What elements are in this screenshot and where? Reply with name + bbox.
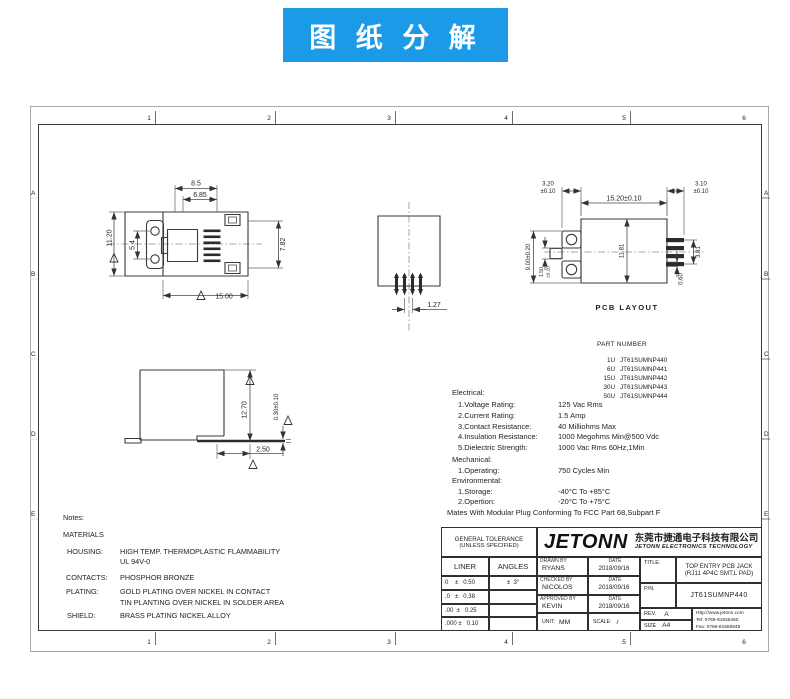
tolerance-liner-2: .0 ± 0.38: [441, 590, 489, 604]
side-body-outline: [140, 370, 224, 440]
zone-number: 2: [267, 639, 271, 646]
scale-cell: SCALE: /: [588, 613, 640, 631]
spec-label: 4.Insulation Resistance:: [458, 432, 558, 441]
title-value-cell: TOP ENTRY PCB JACK (RJ11 4P4C SMT,L PAD): [676, 557, 762, 583]
spec-value: 1000 Vac Rms 60Hz,1Min: [558, 443, 645, 452]
contacts-label: CONTACTS:: [66, 573, 108, 582]
zone-number: 5: [622, 639, 626, 646]
zone-letter: C: [31, 351, 36, 358]
dim-text: 6.85: [193, 192, 207, 199]
dim-text: 15.20±0.10: [607, 196, 642, 203]
plating-code: 30U: [595, 384, 615, 391]
shield-value: BRASS PLATING NICKEL ALLOY: [120, 611, 231, 620]
spec-value: 750 Cycles Min: [558, 466, 609, 475]
mates-note: Mates With Modular Plug Conforming To FC…: [447, 508, 660, 517]
title-label: TITLE.: [641, 558, 675, 566]
plating-code: 15U: [595, 375, 615, 382]
mount-hole: [151, 255, 159, 263]
spec-row: 2.Opertion: -20°C To +75°C: [458, 497, 610, 506]
general-tolerance-header: GENERAL TOLERANCE (UNLESS SPECIFIED): [441, 527, 537, 557]
contact-cell: Http://www.jetonn.com Tel: 0769-81555450…: [692, 608, 762, 631]
drawn-date-value: 2018/09/16: [589, 565, 639, 572]
zone-letter: E: [764, 511, 769, 518]
zone-letter: D: [31, 431, 36, 438]
dim-text: 11.20: [107, 229, 114, 246]
part-number-row: 15U JT61SUMNP442: [595, 375, 667, 382]
zone-number: 3: [387, 639, 391, 646]
drawn-by-cell: DRAWN BY RYANS: [537, 557, 588, 576]
spec-row: 1.Voltage Rating: 125 Vac Rms: [458, 400, 602, 409]
shield-label: SHIELD:: [67, 611, 95, 620]
dim-text: 3.10: [695, 182, 707, 188]
pn-label-cell: P/N.: [640, 583, 676, 608]
checked-by-value: NICOLOS: [538, 584, 587, 591]
zone-number: 1: [147, 639, 151, 646]
spec-row: 4.Insulation Resistance: 1000 Megohms Mi…: [458, 432, 659, 441]
part-number-row: 50U JT61SUMNP444: [595, 393, 667, 400]
dim-text: 15.00: [215, 294, 233, 301]
section-pins: [394, 273, 423, 296]
dim-text: 2.50: [256, 447, 270, 454]
dim-text: ±0.20: [546, 266, 551, 278]
dim-text: 8.5: [191, 181, 201, 188]
pn-label: P/N.: [641, 584, 675, 592]
spec-label: 2.Opertion:: [458, 497, 558, 506]
pn-value-cell: JT61SUMNP440: [676, 583, 762, 608]
plating-value2: TIN PLANTING OVER NICKEL IN SOLDER AREA: [120, 598, 284, 607]
spec-label: 5.Dielectric Strength:: [458, 443, 558, 452]
angles-header: ANGLES: [489, 557, 537, 576]
liner-header: LINER: [441, 557, 489, 576]
front-view: 8.5 6.85 11.20 5.4 7.82 15.00: [107, 181, 288, 301]
tolerance-liner-4: .000 ± 0.10: [441, 617, 489, 631]
dim-text: 0.60: [679, 273, 685, 285]
approved-date-value: 2018/09/16: [589, 603, 639, 610]
company-fax: Fax: 0769-81555945: [696, 624, 761, 631]
zone-letter: A: [764, 190, 769, 197]
spec-value: 125 Vac Rms: [558, 400, 602, 409]
environmental-header: Environmental:: [452, 476, 502, 485]
spec-label: 3.Contact Resistance:: [458, 422, 558, 431]
jetonn-logo: JETONN: [538, 531, 628, 554]
critical-dim-flag-icon: [249, 460, 257, 469]
checked-by-cell: CHECKED BY NICOLOS: [537, 576, 588, 595]
spec-value: 40 Milliohms Max: [558, 422, 616, 431]
scale-value: /: [616, 619, 618, 626]
dim-text: 5.4: [130, 240, 137, 250]
part-number-row: 6U JT61SUMNP441: [595, 366, 667, 373]
plating-label: PLATING:: [66, 587, 99, 596]
unit-label: UNIT:: [542, 619, 555, 625]
unit-value: MM: [559, 619, 570, 626]
materials-header: MATERIALS: [63, 530, 104, 539]
logo-cell: JETONN 东莞市捷通电子科技有限公司 JETONN ELECTRONICS …: [537, 527, 762, 557]
size-cell: SIZE A4: [640, 620, 692, 631]
zone-number: 3: [387, 115, 391, 122]
part-number: JT61SUMNP441: [620, 366, 667, 373]
zone-letter: A: [31, 190, 36, 197]
checked-date-cell: DATE 2018/09/16: [588, 576, 640, 595]
scale-label: SCALE:: [593, 619, 611, 625]
zone-number: 4: [504, 115, 508, 122]
zone-number: 2: [267, 115, 271, 122]
dim-text: 1.27: [427, 302, 441, 309]
part-number: JT61SUMNP444: [620, 393, 667, 400]
drawn-by-value: RYANS: [538, 565, 587, 572]
dim-text: 12.70: [242, 401, 249, 419]
mount-hole: [151, 227, 159, 235]
company-website: Http://www.jetonn.com: [696, 610, 761, 617]
dim-text: 1.50: [539, 267, 545, 277]
size-label: SIZE: [644, 623, 656, 629]
zone-number: 5: [622, 115, 626, 122]
approved-by-cell: APPROVED BY KEVIN: [537, 595, 588, 613]
part-number-row: 1U JT61SUMNP440: [595, 357, 667, 364]
part-number: JT61SUMNP442: [620, 375, 667, 382]
pcb-layout-view: 3.20 ±0.10 15.20±0.10 3.10 ±0.10 9.00±0.…: [526, 182, 709, 313]
dim-text: 9.00±0.20: [526, 243, 532, 270]
zone-letter: E: [31, 511, 36, 518]
housing-value: HIGH TEMP. THERMOPLASTIC FLAMMABILITY: [120, 547, 280, 556]
plating-code: 6U: [595, 366, 615, 373]
general-tolerance-line1: GENERAL TOLERANCE: [455, 536, 524, 543]
dim-text: ±0.10: [541, 189, 557, 195]
electrical-header: Electrical:: [452, 388, 485, 397]
contact-pins-hatch: [204, 230, 221, 263]
notes-header: Notes:: [63, 513, 84, 522]
approved-by-value: KEVIN: [538, 603, 587, 610]
dim-text: 0.30±0.10: [274, 393, 280, 420]
zone-letter: C: [764, 351, 769, 358]
unit-cell: UNIT: MM: [537, 613, 588, 631]
spec-value: 1.5 Amp: [558, 411, 586, 420]
approved-date-cell: DATE 2018/09/16: [588, 595, 640, 613]
checked-date-value: 2018/09/16: [589, 584, 639, 591]
title-label-cell: TITLE.: [640, 557, 676, 583]
size-value: A4: [662, 622, 670, 629]
mechanical-header: Mechanical:: [452, 455, 492, 464]
company-name-cn: 东莞市捷通电子科技有限公司: [635, 534, 759, 545]
tolerance-angles-3: [489, 604, 537, 617]
spec-row: 1.Storage: -40°C To +85°C: [458, 487, 610, 496]
zone-number: 6: [742, 115, 746, 122]
spec-label: 1.Operating:: [458, 466, 558, 475]
part-number-title: PART NUMBER: [597, 341, 647, 348]
dim-text: ±0.10: [694, 189, 710, 195]
part-number: JT61SUMNP443: [620, 384, 667, 391]
tolerance-angles-2: [489, 590, 537, 604]
pcb-pad: [562, 261, 581, 278]
tolerance-liner-1: 0 ± 0.50: [441, 576, 489, 590]
spec-value: 1000 Megohms Min@500 Vdc: [558, 432, 659, 441]
contacts-value: PHOSPHOR BRONZE: [120, 573, 194, 582]
plating-code: 1U: [595, 357, 615, 364]
zone-number: 4: [504, 639, 508, 646]
drawing-title-line2: (RJ11 4P4C SMT,L PAD): [685, 570, 753, 577]
drawing-title-line1: TOP ENTRY PCB JACK: [686, 563, 753, 570]
pcb-pad: [562, 231, 581, 248]
part-number: JT61SUMNP440: [620, 357, 667, 364]
part-number-row: 30U JT61SUMNP443: [595, 384, 667, 391]
spec-label: 1.Storage:: [458, 487, 558, 496]
critical-dim-flag-icon: [284, 416, 292, 425]
spec-label: 2.Current Rating:: [458, 411, 558, 420]
company-tel: Tel: 0769-81555450: [696, 617, 761, 624]
plating-value: GOLD PLATING OVER NICKEL IN CONTACT: [120, 587, 270, 596]
plug-cavity: [168, 230, 198, 262]
housing-label: HOUSING:: [67, 547, 103, 556]
spec-row: 2.Current Rating: 1.5 Amp: [458, 411, 586, 420]
side-view: 12.70 0.30±0.10 2.50: [125, 370, 292, 469]
zone-letter: D: [764, 431, 769, 438]
general-tolerance-line2: (UNLESS SPECIFIED): [459, 543, 518, 549]
rev-value: A: [664, 611, 668, 618]
dim-text: 7.82: [280, 238, 287, 252]
zone-letter: B: [31, 271, 35, 278]
dim-text: 3.81: [696, 246, 702, 258]
section-view: 1.27: [378, 202, 447, 332]
plating-code: 50U: [595, 393, 615, 400]
spec-row: 3.Contact Resistance: 40 Milliohms Max: [458, 422, 616, 431]
tolerance-angles-1: ± 3°: [489, 576, 537, 590]
spec-row: 5.Dielectric Strength: 1000 Vac Rms 60Hz…: [458, 443, 645, 452]
drawn-date-cell: DATE 2018/09/16: [588, 557, 640, 576]
tolerance-liner-3: .00 ± 0.25: [441, 604, 489, 617]
dim-text: 3.20: [542, 182, 554, 188]
spec-value: -40°C To +85°C: [558, 487, 610, 496]
spec-row: 1.Operating: 750 Cycles Min: [458, 466, 609, 475]
zone-number: 6: [742, 639, 746, 646]
dim-text: 11.81: [620, 243, 626, 258]
zone-letter: B: [764, 271, 768, 278]
pcb-layout-label: PCB LAYOUT: [595, 303, 658, 312]
rev-label: REV.: [644, 611, 656, 617]
rev-cell: REV. A: [640, 608, 692, 620]
company-name-en: JETONN ELECTRONICS TECHNOLOGY: [635, 544, 759, 550]
tolerance-angles-4: [489, 617, 537, 631]
spec-label: 1.Voltage Rating:: [458, 400, 558, 409]
spec-value: -20°C To +75°C: [558, 497, 610, 506]
housing-value2: UL 94V-0: [120, 557, 150, 566]
zone-number: 1: [147, 115, 151, 122]
